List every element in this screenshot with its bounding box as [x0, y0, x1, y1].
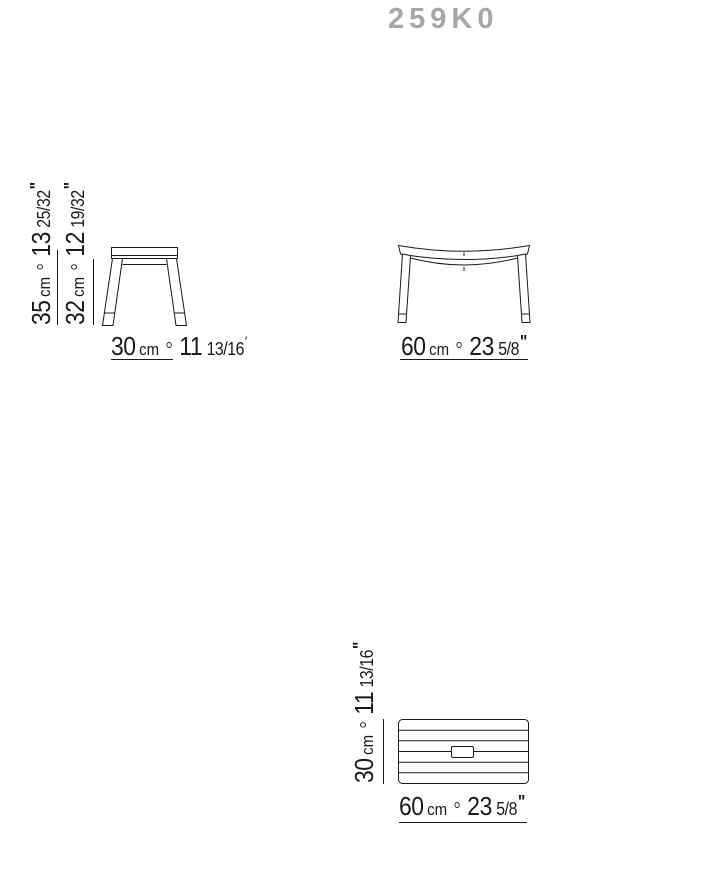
dim-value-in: 23: [469, 331, 494, 361]
degree-separator-icon: [454, 802, 459, 808]
dim-fraction: 19/32: [68, 190, 88, 227]
front-left-leg: [398, 254, 411, 323]
top-view-drawing: [395, 716, 535, 788]
dim-side-height-total: 35cm1325/32": [26, 162, 56, 325]
dim-unit: cm: [35, 277, 54, 297]
dim-top-depth: 30cm1113/16": [349, 622, 379, 783]
dim-fraction: 5/8: [496, 799, 517, 819]
dim-value-cm: 32: [60, 300, 90, 325]
product-code: 259K0: [388, 5, 498, 34]
dim-value-in: 13: [26, 232, 56, 257]
front-view-drawing: [390, 238, 538, 328]
side-left-leg: [103, 259, 123, 326]
dim-value-cm: 35: [26, 300, 56, 325]
inch-mark: ": [27, 182, 47, 190]
inch-mark: ′: [245, 333, 247, 349]
inch-mark: ": [518, 792, 526, 812]
dim-value-in: 23: [467, 791, 492, 821]
degree-separator-icon: [37, 265, 43, 270]
dim-top-width: 60cm235/8": [399, 791, 543, 821]
dim-value-cm: 60: [401, 331, 426, 361]
dim-fraction: 13/16: [207, 339, 244, 359]
dim-value-cm: 30: [349, 758, 379, 783]
dim-unit: cm: [139, 340, 159, 359]
front-right-leg: [518, 254, 531, 323]
side-view-drawing: [95, 240, 195, 332]
degree-separator-icon: [360, 723, 366, 728]
dim-value-cm: 60: [399, 791, 424, 821]
inch-mark: ": [61, 182, 81, 190]
dim-fraction: 13/16: [357, 650, 377, 687]
dim-value-cm: 30: [111, 331, 136, 361]
degree-separator-icon: [166, 342, 171, 348]
inch-mark: ": [350, 642, 370, 650]
dim-value-in: 12: [60, 232, 90, 257]
side-seat: [112, 248, 178, 259]
dim-front-width: 60cm235/8": [401, 331, 545, 361]
side-right-leg: [167, 259, 187, 326]
dim-value-in: 11: [349, 692, 379, 715]
dim-unit: cm: [358, 735, 377, 755]
dim-side-height-underseat: 32cm1219/32": [60, 162, 90, 325]
degree-separator-icon: [456, 342, 461, 348]
dim-unit: cm: [427, 800, 447, 819]
dim-unit: cm: [429, 340, 449, 359]
dim-side-depth: 30cm1113/16′: [111, 331, 266, 361]
dim-fraction: 25/32: [34, 190, 54, 227]
spec-sheet: 259K0 35cm1325/32" 32cm1219/32" 30cm1113…: [0, 0, 725, 873]
degree-separator-icon: [71, 265, 77, 270]
dim-fraction: 5/8: [498, 339, 519, 359]
dim-value-in: 11: [179, 331, 202, 361]
top-center-handle: [452, 747, 474, 758]
dim-unit: cm: [69, 277, 88, 297]
inch-mark: ": [520, 332, 528, 352]
